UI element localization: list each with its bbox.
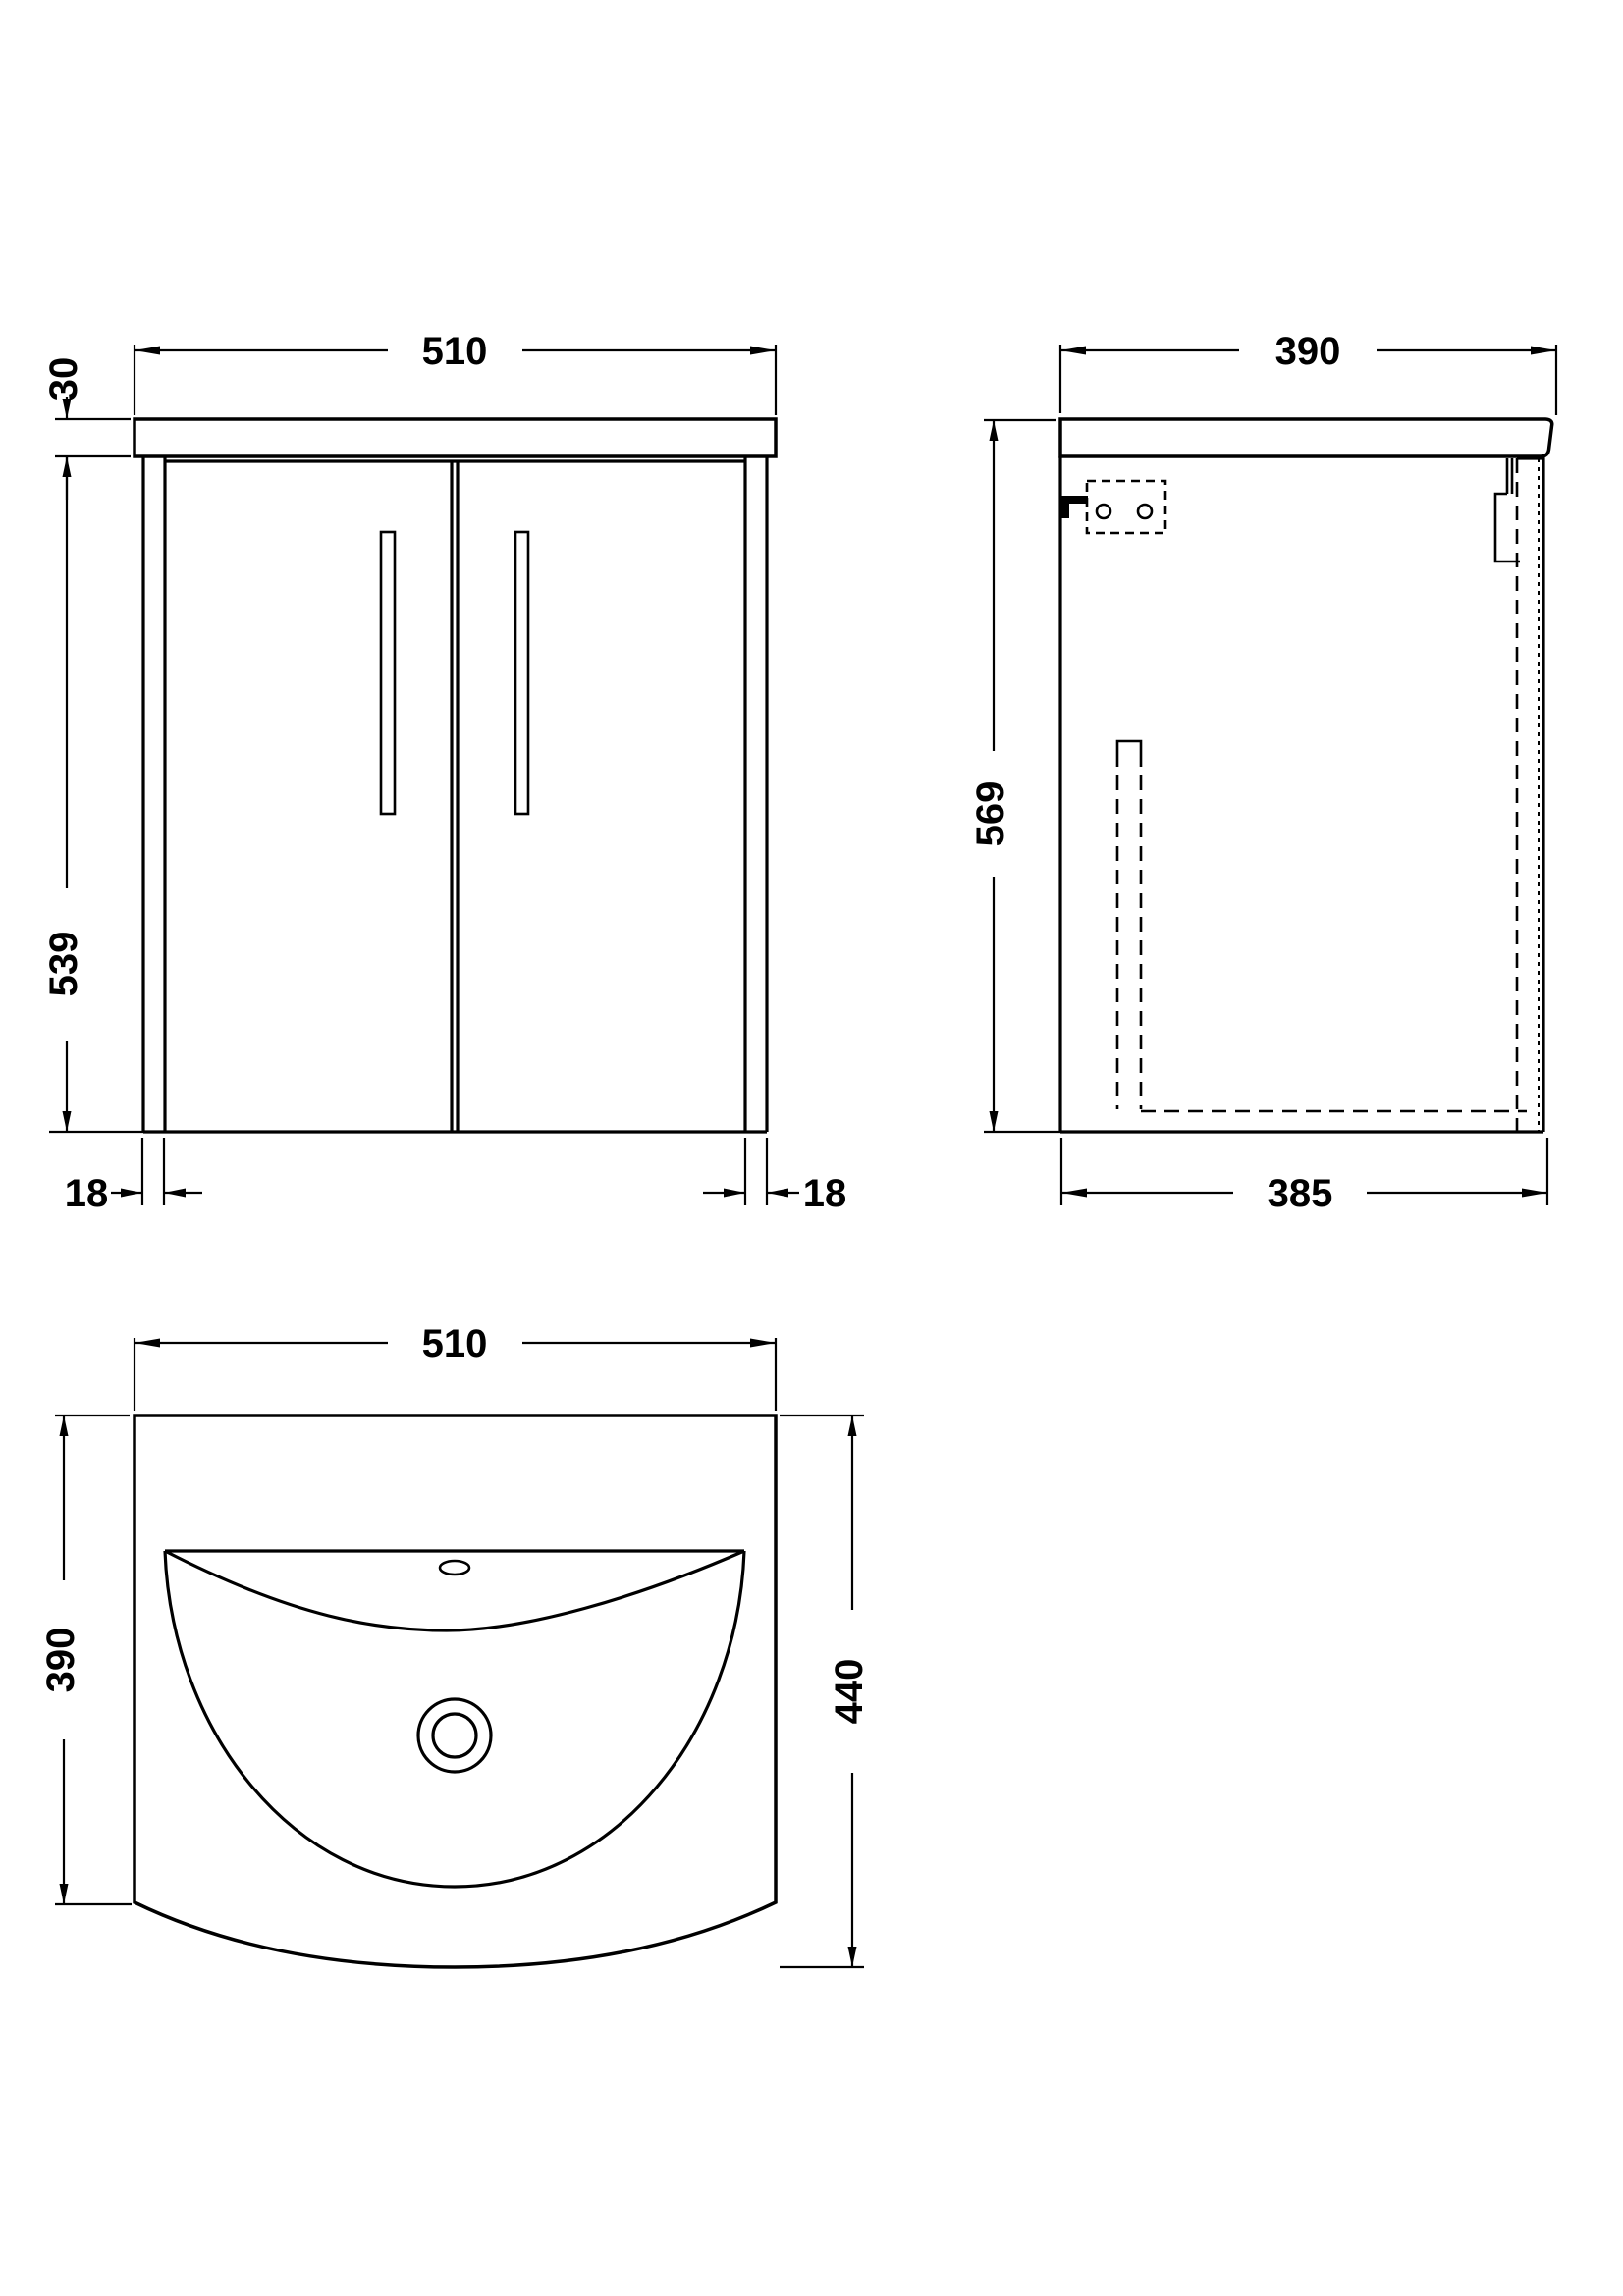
- dim-front-left-panel-label: 18: [65, 1172, 109, 1215]
- plan-basin-outline: [135, 1415, 776, 1967]
- side-wall-hook: [1061, 496, 1088, 518]
- side-back-upstand: [1117, 752, 1141, 1109]
- dim-side-depth-label: 390: [1275, 330, 1341, 373]
- front-worktop: [135, 419, 776, 456]
- dim-side-height: 569: [969, 420, 1060, 1132]
- side-back-upstand-cap: [1117, 741, 1141, 752]
- dim-plan-overall-depth-label: 440: [828, 1659, 871, 1725]
- vanity-unit-drawing: 510 30 539 18: [0, 0, 1623, 2296]
- side-cabinet-lines: [1060, 456, 1543, 1132]
- dim-side-cabinet-depth: 385: [1061, 1138, 1547, 1215]
- dim-plan-basin-depth: 390: [39, 1415, 132, 1904]
- side-bracket-screw-right: [1138, 505, 1152, 518]
- dim-front-cabinet-height-label: 539: [42, 932, 85, 997]
- dim-front-worktop-thickness: 30: [42, 357, 131, 500]
- dim-front-right-panel-label: 18: [803, 1172, 847, 1215]
- technical-drawing-page: 510 30 539 18: [0, 0, 1623, 2296]
- dim-front-worktop-thickness-label: 30: [42, 357, 85, 401]
- dim-front-width-label: 510: [422, 330, 488, 373]
- dim-plan-width: 510: [135, 1322, 776, 1411]
- dim-side-depth: 390: [1060, 330, 1556, 415]
- side-bracket-screw-left: [1097, 505, 1110, 518]
- dim-side-cabinet-depth-label: 385: [1268, 1172, 1333, 1215]
- dim-front-right-panel: 18: [703, 1138, 846, 1215]
- front-left-door-handle: [381, 532, 395, 814]
- dim-side-height-label: 569: [969, 781, 1012, 847]
- plan-view: 510 390 440: [39, 1322, 871, 1967]
- dim-plan-basin-depth-label: 390: [39, 1628, 82, 1693]
- dim-plan-overall-depth: 440: [780, 1415, 871, 1967]
- side-view: 390 569 385: [969, 330, 1556, 1215]
- front-right-door-handle: [515, 532, 528, 814]
- side-worktop: [1060, 419, 1552, 456]
- dim-front-width: 510: [135, 330, 776, 415]
- front-view: 510 30 539 18: [42, 330, 846, 1215]
- dim-plan-width-label: 510: [422, 1322, 488, 1365]
- front-cabinet-lines: [143, 456, 767, 1132]
- dim-front-left-panel: 18: [65, 1138, 202, 1215]
- dim-front-cabinet-height: 539: [42, 456, 143, 1132]
